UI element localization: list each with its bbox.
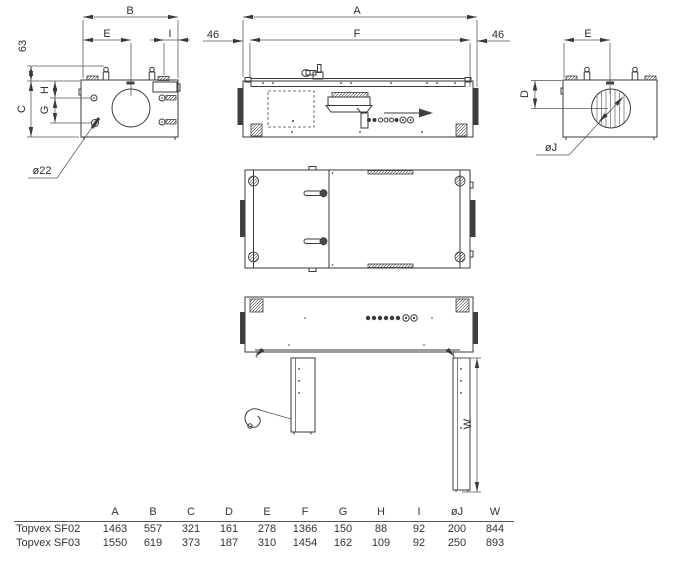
column-header: F [286, 505, 324, 522]
table-cell: 109 [362, 536, 400, 550]
dim-label-A: A [353, 5, 361, 17]
table-cell: 321 [172, 522, 210, 537]
table-cell: 557 [134, 522, 172, 537]
dim-label-dia22: ø22 [33, 165, 52, 177]
hinge-strip [158, 77, 169, 81]
table-header-row: A B C D E F G H I øJ W [14, 505, 514, 522]
column-header: øJ [438, 505, 476, 522]
fastener-strip [166, 96, 176, 101]
mounting-foot [455, 252, 465, 262]
fan-box [328, 97, 370, 106]
table-cell: 893 [476, 536, 514, 550]
dim-label-E-end: E [584, 28, 591, 40]
door-latch [304, 238, 327, 245]
table-cell: 200 [438, 522, 476, 537]
top-rail [251, 79, 465, 87]
hinge-strip [368, 171, 413, 175]
dia22-leader [57, 126, 93, 178]
corner-bracket [251, 124, 262, 136]
model-name: Topvex SF03 [14, 536, 96, 550]
top-fitting-icon [633, 67, 638, 72]
table-cell: 1550 [96, 536, 134, 550]
side-view: A F 46 46 [203, 5, 510, 137]
fan-scroll [326, 106, 372, 113]
table-cell: 619 [134, 536, 172, 550]
table-cell: 250 [438, 536, 476, 550]
hinge-strip [566, 76, 577, 80]
corner-bracket [250, 299, 263, 312]
top-fitting-icon [104, 67, 109, 72]
mounting-foot [455, 176, 465, 186]
hinge-strip [645, 76, 656, 80]
mounting-foot [249, 252, 259, 262]
junction-box [153, 82, 177, 92]
hinge-strip [87, 76, 98, 80]
dim-label-F: F [354, 28, 361, 40]
duct-flange-left [238, 88, 244, 125]
fastener-strip [166, 120, 176, 125]
dimensions-table: A B C D E F G H I øJ W Topvex SF02 1463 [14, 505, 514, 550]
terminal-row [367, 117, 414, 123]
dim-label-D: D [519, 90, 531, 98]
table-cell: 310 [248, 536, 286, 550]
column-header: C [172, 505, 210, 522]
table-cell: 161 [210, 522, 248, 537]
column-header: H [362, 505, 400, 522]
dim-label-E: E [103, 28, 110, 40]
open-door-left [291, 358, 315, 435]
column-header: A [96, 505, 134, 522]
duct-flange-left [240, 312, 245, 344]
column-header: W [476, 505, 514, 522]
column-header: B [134, 505, 172, 522]
column-header-model [14, 505, 96, 522]
dim-label-46-right: 46 [492, 29, 504, 41]
dim-label-46-left: 46 [207, 29, 219, 41]
front-view: B E I 63 C H G ø22 [16, 5, 190, 178]
cable-gland-row [366, 315, 417, 321]
table-cell: 187 [210, 536, 248, 550]
corner-bracket [456, 299, 469, 312]
table-cell: 278 [248, 522, 286, 537]
table-cell: 373 [172, 536, 210, 550]
table-cell: 1366 [286, 522, 324, 537]
technical-drawing-page: B E I 63 C H G ø22 [0, 0, 676, 564]
table-row: Topvex SF03 1550 619 373 187 310 1454 16… [14, 536, 514, 550]
rivet-dots [262, 82, 456, 133]
heater-strip [332, 93, 368, 98]
duct-flange-left [240, 200, 245, 237]
dim-label-I: I [168, 28, 171, 40]
duct-flange-right [473, 88, 479, 125]
corner-bracket [456, 124, 467, 136]
front-body [81, 80, 178, 137]
table-row: Topvex SF02 1463 557 321 161 278 1366 15… [14, 522, 514, 537]
table-cell: 92 [400, 522, 438, 537]
dim-label-diaJ: øJ [545, 142, 557, 154]
dim-label-63: 63 [17, 40, 29, 52]
mounting-foot [249, 176, 259, 186]
column-header: G [324, 505, 362, 522]
column-header: I [400, 505, 438, 522]
duct-flange-right [471, 200, 476, 237]
filter-section [268, 91, 314, 127]
table-cell: 1463 [96, 522, 134, 537]
dim-label-W: W [462, 418, 474, 429]
dim-label-H: H [39, 86, 51, 94]
column-header: D [210, 505, 248, 522]
damper-flag [361, 113, 368, 128]
door-latch [304, 190, 327, 197]
door-stay-hook [245, 409, 291, 428]
drawing-canvas: B E I 63 C H G ø22 [0, 0, 676, 564]
column-header: E [248, 505, 286, 522]
open-door-view: W [240, 297, 481, 492]
duct-flange-right [473, 312, 478, 344]
table-cell: 92 [400, 536, 438, 550]
handle [302, 65, 323, 80]
open-body [245, 297, 473, 352]
table-cell: 162 [324, 536, 362, 550]
sensor-mark [127, 82, 135, 85]
dim-label-C: C [16, 105, 28, 113]
table-cell: 844 [476, 522, 514, 537]
table-cell: 150 [324, 522, 362, 537]
model-name: Topvex SF02 [14, 522, 96, 537]
dim-label-G: G [39, 106, 51, 115]
end-view: E D øJ [519, 28, 657, 155]
table-cell: 88 [362, 522, 400, 537]
table-cell: 1454 [286, 536, 324, 550]
top-fitting-icon [585, 67, 590, 72]
top-fitting-icon [150, 67, 155, 72]
top-body [245, 170, 470, 268]
dim-label-B: B [126, 5, 133, 17]
top-view [240, 167, 476, 272]
hinge-strip [368, 264, 413, 268]
